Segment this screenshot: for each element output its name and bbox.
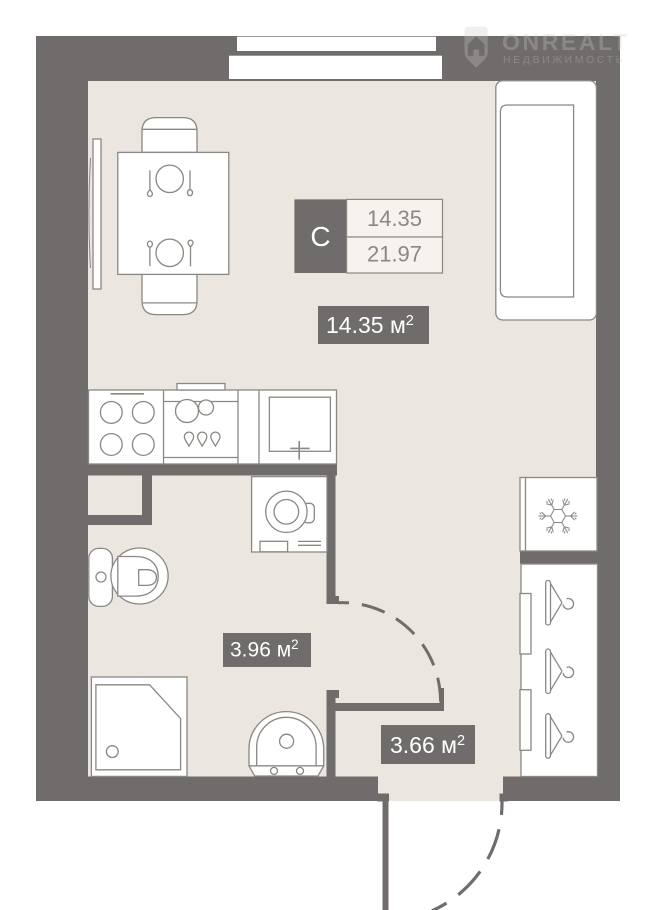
svg-text:ONREALT: ONREALT	[502, 29, 630, 55]
svg-text:C: C	[310, 221, 330, 252]
svg-text:14.35 м2: 14.35 м2	[326, 312, 414, 338]
svg-text:НЕДВИЖИМОСТЬ: НЕДВИЖИМОСТЬ	[503, 54, 625, 66]
svg-text:3.66 м2: 3.66 м2	[390, 732, 465, 758]
svg-text:14.35: 14.35	[367, 206, 422, 231]
svg-text:21.97: 21.97	[367, 242, 422, 267]
svg-text:3.96 м2: 3.96 м2	[230, 637, 299, 662]
